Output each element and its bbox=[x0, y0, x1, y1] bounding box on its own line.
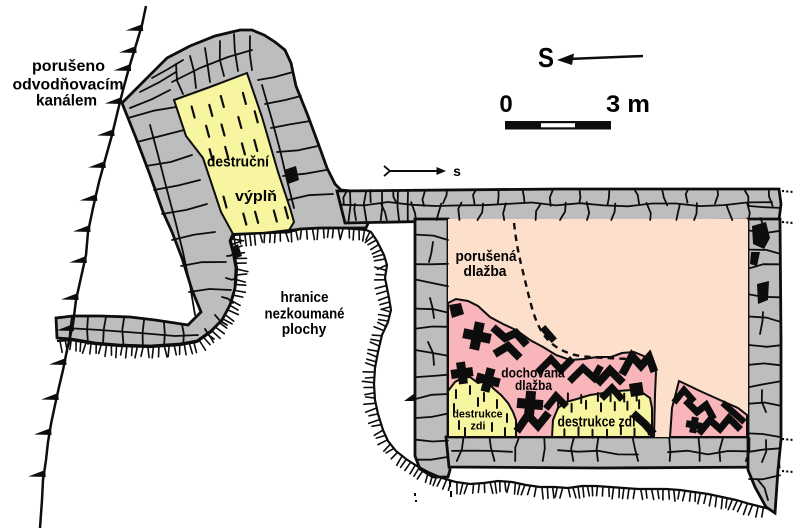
svg-text:porušená: porušená bbox=[456, 249, 518, 265]
svg-text:dlažba: dlažba bbox=[464, 264, 508, 280]
svg-text:porušeno: porušeno bbox=[32, 58, 105, 75]
svg-text:destrukce: destrukce bbox=[453, 409, 503, 421]
svg-text:výplň: výplň bbox=[235, 188, 277, 205]
svg-text:zdi: zdi bbox=[471, 421, 486, 433]
svg-text:plochy: plochy bbox=[282, 322, 327, 338]
svg-text:destruční: destruční bbox=[207, 154, 270, 171]
svg-text:S: S bbox=[538, 42, 554, 73]
svg-text:nezkoumané: nezkoumané bbox=[265, 307, 345, 323]
svg-text:kanálem: kanálem bbox=[36, 93, 97, 110]
svg-text:hranice: hranice bbox=[281, 290, 329, 306]
svg-text:destrukce zdi: destrukce zdi bbox=[558, 414, 636, 431]
svg-text:odvodňovacím: odvodňovacím bbox=[13, 77, 124, 94]
svg-text:0: 0 bbox=[499, 91, 512, 118]
svg-text:3 m: 3 m bbox=[606, 91, 650, 118]
svg-text:s: s bbox=[453, 163, 461, 179]
svg-text:dlažba: dlažba bbox=[515, 378, 552, 393]
